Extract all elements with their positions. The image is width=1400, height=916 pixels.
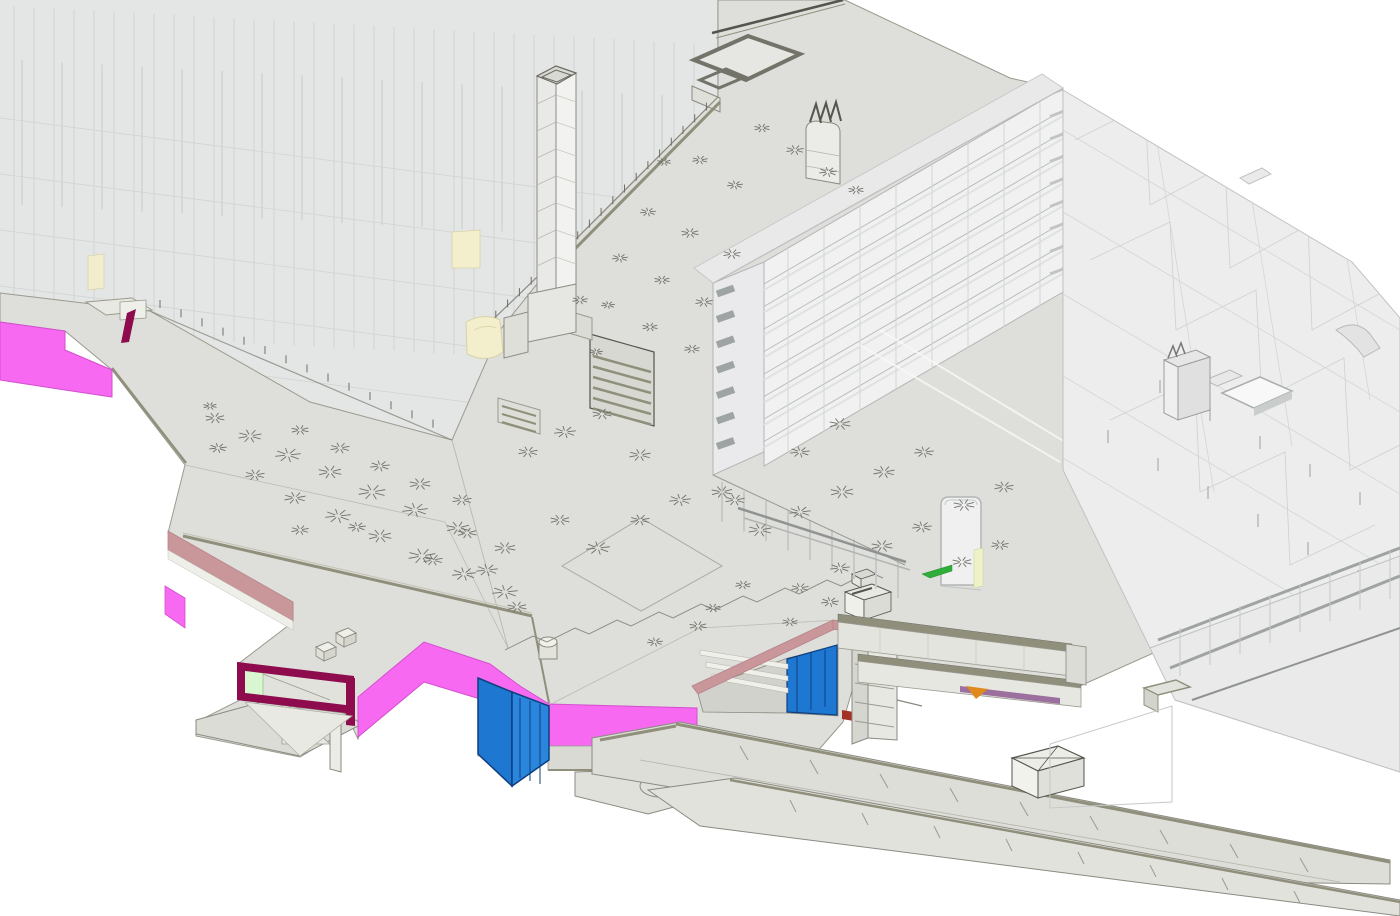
- stepped-wall-end: [1066, 644, 1086, 685]
- tower-cream-patch-a: [452, 230, 480, 268]
- chimney-base-step: [504, 312, 528, 358]
- tower-cream-patch-b: [88, 254, 104, 290]
- rooftop-unit-side: [1178, 357, 1210, 420]
- chimney-base: [528, 284, 576, 342]
- yellow-sliver: [974, 548, 983, 588]
- maroon-frame-left-post: [237, 662, 245, 701]
- model-viewport-stage: [0, 0, 1400, 916]
- bim-3d-viewport[interactable]: [0, 0, 1400, 916]
- cream-bench: [466, 316, 503, 358]
- rooftop-unit-front: [1164, 360, 1178, 420]
